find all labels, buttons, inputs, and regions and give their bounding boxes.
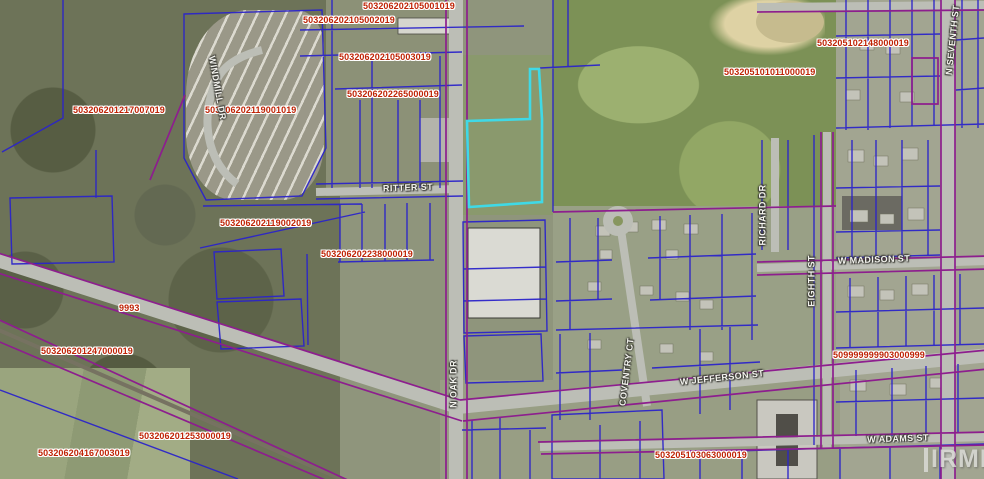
street-label-n-seventh-st: N SEVENTH ST bbox=[945, 5, 961, 76]
parcel-id-label: 503205101011000019 bbox=[724, 68, 815, 77]
parcel-id-label: 503206202238000019 bbox=[321, 250, 413, 259]
parcel-id-label: 503206202105001019 bbox=[363, 2, 455, 11]
parcel-id-label: 503206201247000019 bbox=[41, 347, 133, 356]
street-label-ritter-st: RITTER ST bbox=[383, 183, 433, 194]
watermark-text: IRMLS bbox=[931, 445, 984, 474]
parcel-id-label: 503206202119002019 bbox=[220, 219, 311, 228]
parcel-id-label: 503206201217007019 bbox=[73, 106, 165, 115]
street-label-w-madison-st: W MADISON ST bbox=[838, 254, 911, 266]
parcel-id-label: 503205103063000019 bbox=[655, 451, 747, 460]
parcel-id-label: 503206202265000019 bbox=[347, 90, 439, 99]
parcel-id-label: 503206202105002019 bbox=[303, 16, 395, 25]
parcel-id-label: 503206201253000019 bbox=[139, 432, 231, 441]
parcel-id-label: 503205102148000019 bbox=[817, 39, 909, 48]
parcel-id-label: 509999999903000999 bbox=[833, 351, 925, 360]
parcel-id-label: 503206204167003019 bbox=[38, 449, 130, 458]
street-label-coventry-ct: COVENTRY CT bbox=[618, 337, 635, 406]
labels-layer: 5032062021050010195032062021050020195032… bbox=[0, 0, 984, 479]
street-label-eighth-st: EIGHTH ST bbox=[808, 255, 817, 307]
watermark-bar bbox=[924, 448, 928, 472]
street-label-w-adams-st: W ADAMS ST bbox=[867, 433, 929, 444]
street-label-n-oak-dr: N OAK DR bbox=[450, 360, 459, 408]
street-label-w-jefferson-st: W JEFFERSON ST bbox=[679, 369, 764, 387]
parcel-id-label: 503206202105003019 bbox=[339, 53, 431, 62]
street-label-richard-dr: RICHARD DR bbox=[759, 185, 768, 246]
address-label: 9993 bbox=[119, 304, 139, 313]
gis-map-canvas[interactable]: 5032062021050010195032062021050020195032… bbox=[0, 0, 984, 479]
irmls-watermark: IRMLS bbox=[924, 445, 984, 474]
